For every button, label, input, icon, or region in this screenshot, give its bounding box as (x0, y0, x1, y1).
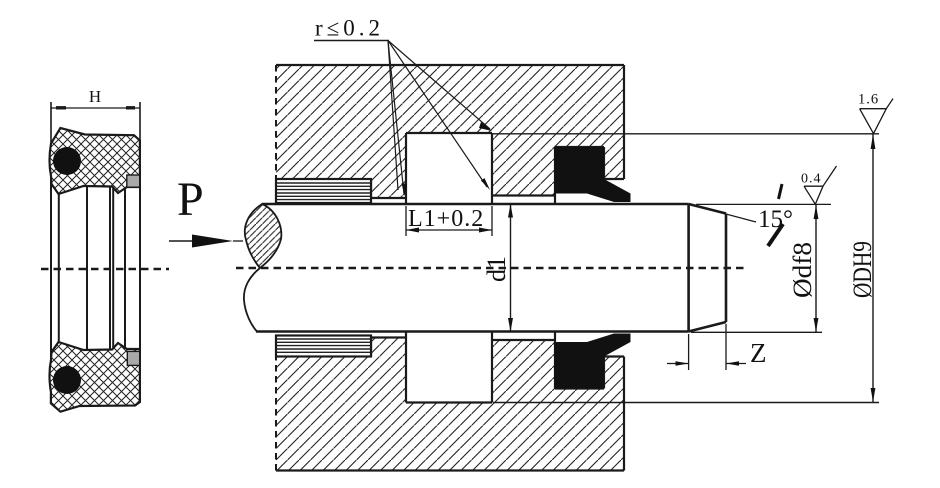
svg-text:P: P (177, 173, 204, 226)
svg-text:d1: d1 (482, 256, 511, 282)
svg-text:r≤0.2: r≤0.2 (315, 16, 384, 41)
svg-text:0.4: 0.4 (801, 172, 822, 187)
svg-text:15°: 15° (758, 206, 793, 233)
svg-text:ØDH9: ØDH9 (848, 241, 877, 298)
svg-text:1.6: 1.6 (858, 92, 879, 108)
svg-text:H: H (89, 87, 101, 106)
svg-text:L1+0.2: L1+0.2 (408, 206, 484, 232)
svg-text:Ødf8: Ødf8 (788, 242, 817, 298)
svg-text:Z: Z (750, 338, 767, 368)
